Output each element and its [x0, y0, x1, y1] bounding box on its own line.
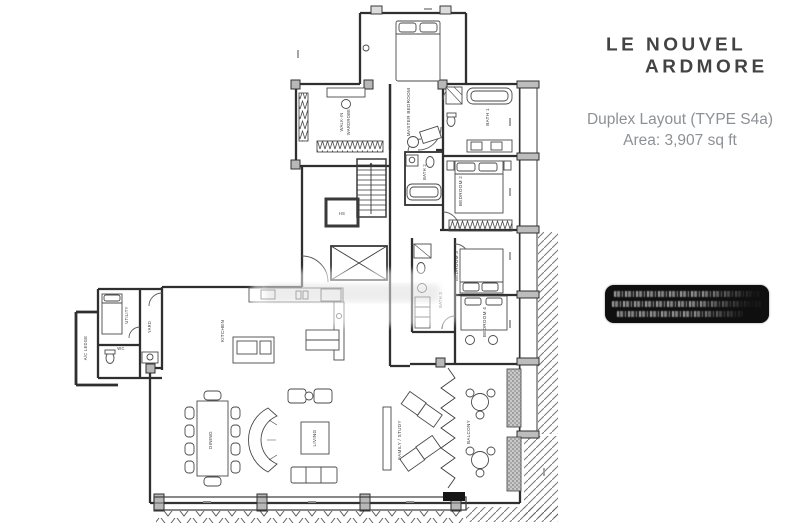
label-family-study: FAMILY / STUDY: [397, 420, 402, 460]
sofa: [291, 467, 337, 483]
console: [383, 407, 391, 470]
vanity-table: [327, 88, 365, 97]
living-set: [248, 389, 337, 483]
bath1-fixtures: [446, 87, 512, 152]
label-bath2: BATH 2: [422, 164, 427, 180]
stool: [342, 100, 351, 109]
wardrobe: [299, 93, 308, 141]
watermark-smudge: [252, 270, 457, 326]
desk: [420, 126, 442, 143]
balcony-table: [472, 452, 489, 469]
label-balcony: BALCONY: [466, 420, 471, 444]
folding-door: [441, 368, 455, 488]
wall-lamp: [363, 45, 369, 51]
label-bedroom2: BEDROOM 2: [458, 176, 463, 206]
layout-title: Duplex Layout (TYPE S4a): [560, 109, 800, 130]
wardrobe: [449, 220, 512, 231]
label-bath1: BATH 1: [485, 108, 490, 126]
wardrobe: [317, 141, 383, 152]
stool: [466, 336, 475, 345]
stool: [489, 336, 498, 345]
illegible-text-line: [614, 291, 760, 297]
brand-logo-line1: LE NOUVEL: [606, 36, 746, 54]
layout-area: Area: 3,907 sq ft: [560, 130, 800, 151]
family-study-furniture: [383, 392, 442, 472]
planter: [507, 437, 521, 491]
label-living: LIVING: [312, 429, 317, 446]
label-dining: DINING: [208, 431, 213, 449]
floorplan-drawing: MASTER BEDROOM WALK-IN WARDROBE BATH 1 B…: [0, 0, 575, 525]
balcony-table: [472, 394, 489, 411]
disclaimer-badge: [605, 285, 769, 323]
side-table: [305, 392, 313, 400]
label-ac-ledge: A/C LEDGE: [83, 336, 88, 361]
chair: [408, 137, 419, 148]
label-yard: YARD: [147, 321, 152, 333]
planter: [507, 369, 521, 427]
listing-floorplan-image: MASTER BEDROOM WALK-IN WARDROBE BATH 1 B…: [0, 0, 800, 525]
label-bedroom4: BEDROOM 4: [482, 307, 487, 337]
layout-caption: Duplex Layout (TYPE S4a) Area: 3,907 sq …: [560, 109, 800, 151]
balcony-elements: [441, 368, 521, 501]
label-utility: UTILITY: [124, 306, 129, 323]
bedroom2-furniture: [447, 161, 512, 231]
bedroom3-furniture: [460, 249, 503, 293]
label-master-bedroom: MASTER BEDROOM: [406, 88, 411, 136]
label-wardrobe: WARDROBE: [346, 109, 351, 135]
armchair: [314, 389, 332, 403]
armchair: [288, 389, 306, 403]
stair-core: [326, 159, 387, 280]
label-hs: HS: [339, 211, 345, 216]
label-kitchen: KITCHEN: [220, 320, 225, 342]
label-wc: WC: [117, 346, 124, 351]
illegible-text-line: [612, 301, 762, 307]
label-walk-in: WALK-IN: [339, 112, 344, 131]
brand-logo-line2: ARDMORE: [645, 58, 768, 76]
toilet: [426, 157, 434, 168]
illegible-text-line: [617, 311, 743, 317]
